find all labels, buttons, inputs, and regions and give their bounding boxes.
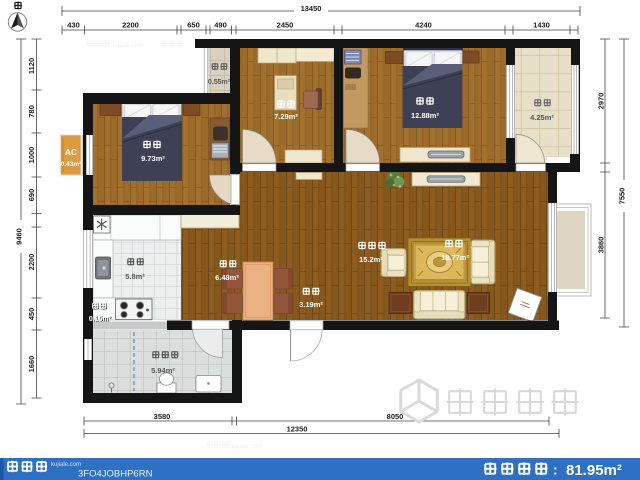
svg-text:1660: 1660	[27, 356, 36, 373]
svg-text:7550: 7550	[618, 188, 627, 205]
svg-text:6.48m²: 6.48m²	[215, 273, 239, 282]
svg-text:kujiale.com: kujiale.com	[113, 43, 143, 49]
svg-text:1430: 1430	[533, 21, 550, 30]
svg-text:3580: 3580	[154, 412, 171, 421]
svg-text:780: 780	[27, 105, 36, 118]
svg-text:12.88m²: 12.88m²	[411, 111, 439, 120]
svg-text:0.43m²: 0.43m²	[61, 161, 82, 168]
svg-text:5.8m²: 5.8m²	[125, 272, 145, 281]
svg-text:0.15m²: 0.15m²	[89, 316, 112, 323]
svg-text:1120: 1120	[27, 58, 36, 74]
svg-text:2200: 2200	[122, 21, 139, 30]
svg-text:AC: AC	[65, 147, 77, 157]
svg-text:9.73m²: 9.73m²	[141, 154, 165, 163]
svg-text:490: 490	[214, 21, 227, 30]
svg-text:9460: 9460	[15, 228, 24, 245]
svg-text:18.77m²: 18.77m²	[441, 253, 469, 262]
svg-text:81.95m²: 81.95m²	[566, 462, 622, 479]
svg-text:650: 650	[187, 21, 200, 30]
svg-text:15.2m²: 15.2m²	[359, 255, 383, 264]
svg-text:0.55m²: 0.55m²	[208, 79, 231, 86]
svg-text:4.25m²: 4.25m²	[530, 113, 554, 122]
svg-text:3860: 3860	[597, 237, 606, 254]
svg-text:450: 450	[27, 308, 36, 321]
svg-text:12350: 12350	[287, 425, 308, 434]
svg-text::: :	[553, 462, 558, 478]
svg-text:2970: 2970	[597, 93, 606, 110]
svg-text:2450: 2450	[277, 21, 294, 30]
svg-text:2200: 2200	[27, 254, 36, 271]
svg-text:7.29m²: 7.29m²	[274, 112, 298, 121]
svg-text:690: 690	[27, 189, 36, 202]
svg-text:4240: 4240	[415, 21, 432, 30]
svg-text:3FO4JOBHP6RN: 3FO4JOBHP6RN	[78, 469, 153, 480]
svg-text:kujiale.com: kujiale.com	[232, 444, 262, 450]
svg-text:5.94m²: 5.94m²	[151, 366, 175, 375]
svg-text:13450: 13450	[301, 4, 322, 13]
svg-text:8050: 8050	[387, 412, 404, 421]
svg-text:kujiale.com: kujiale.com	[51, 462, 81, 468]
svg-text:3.19m²: 3.19m²	[299, 300, 323, 309]
svg-text:1000: 1000	[27, 147, 36, 164]
svg-text:430: 430	[67, 21, 80, 30]
